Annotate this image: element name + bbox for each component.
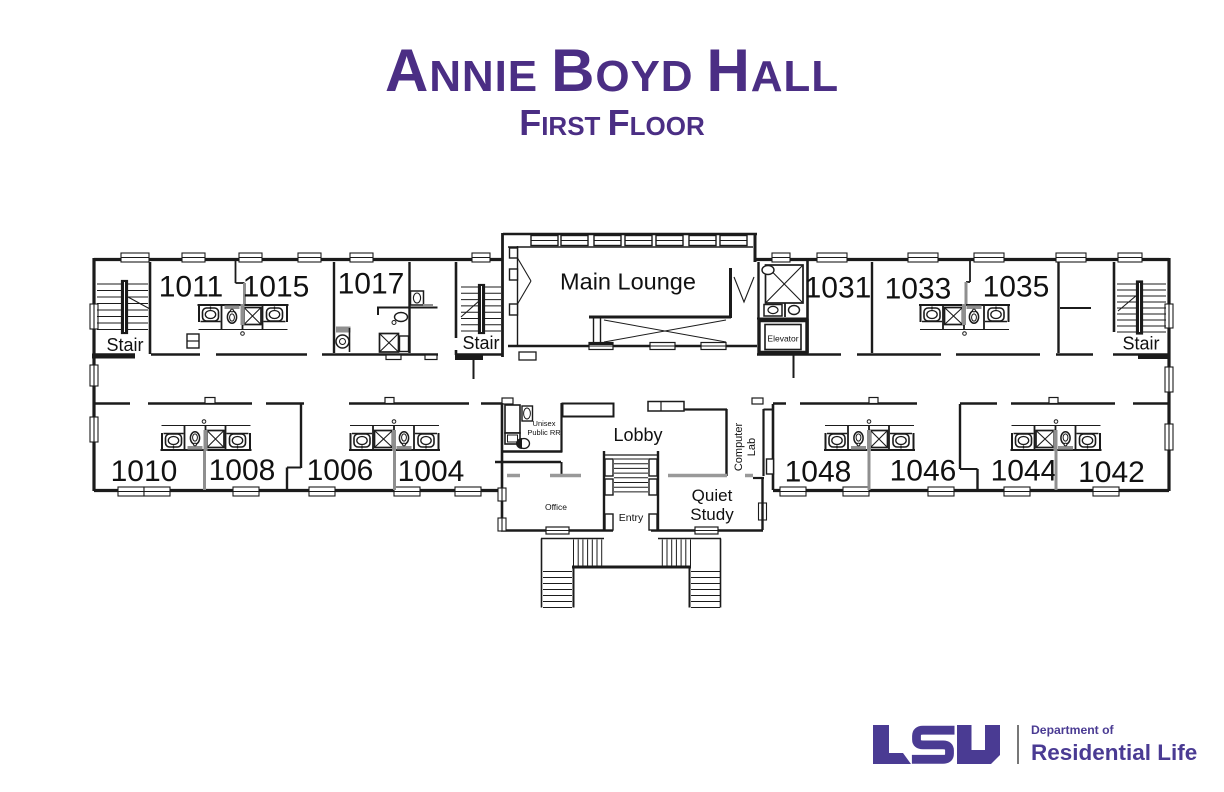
svg-text:1010: 1010 — [111, 455, 178, 488]
svg-text:ANNIE BOYD HALL: ANNIE BOYD HALL — [385, 37, 839, 104]
svg-text:1006: 1006 — [307, 454, 374, 487]
svg-text:Lobby: Lobby — [613, 425, 662, 445]
svg-text:1031: 1031 — [805, 272, 872, 305]
svg-text:1033: 1033 — [885, 273, 952, 306]
svg-text:Elevator: Elevator — [767, 334, 798, 344]
svg-text:1048: 1048 — [785, 456, 852, 489]
svg-text:Computer: Computer — [733, 423, 745, 472]
svg-text:Stair: Stair — [1122, 334, 1159, 354]
svg-text:1015: 1015 — [243, 271, 310, 304]
svg-text:Quiet: Quiet — [692, 486, 733, 505]
svg-text:Public RR: Public RR — [527, 428, 561, 437]
svg-text:1035: 1035 — [983, 271, 1050, 304]
svg-text:1011: 1011 — [159, 271, 224, 304]
svg-text:1017: 1017 — [338, 268, 405, 301]
svg-text:1042: 1042 — [1078, 456, 1145, 489]
svg-text:1008: 1008 — [209, 454, 276, 487]
svg-text:1046: 1046 — [890, 455, 957, 488]
svg-text:Entry: Entry — [619, 512, 644, 524]
svg-text:FIRST FLOOR: FIRST FLOOR — [519, 102, 705, 143]
svg-text:1004: 1004 — [398, 455, 465, 488]
svg-text:Department of: Department of — [1031, 723, 1115, 737]
svg-text:1044: 1044 — [991, 455, 1058, 488]
svg-text:Main Lounge: Main Lounge — [560, 269, 696, 295]
svg-text:Stair: Stair — [106, 335, 143, 355]
svg-text:Unisex: Unisex — [533, 419, 556, 428]
svg-text:Lab: Lab — [746, 438, 758, 456]
svg-text:Stair: Stair — [462, 333, 499, 353]
svg-text:Residential Life: Residential Life — [1031, 740, 1197, 765]
svg-text:Office: Office — [545, 502, 567, 512]
svg-text:Study: Study — [690, 505, 734, 524]
